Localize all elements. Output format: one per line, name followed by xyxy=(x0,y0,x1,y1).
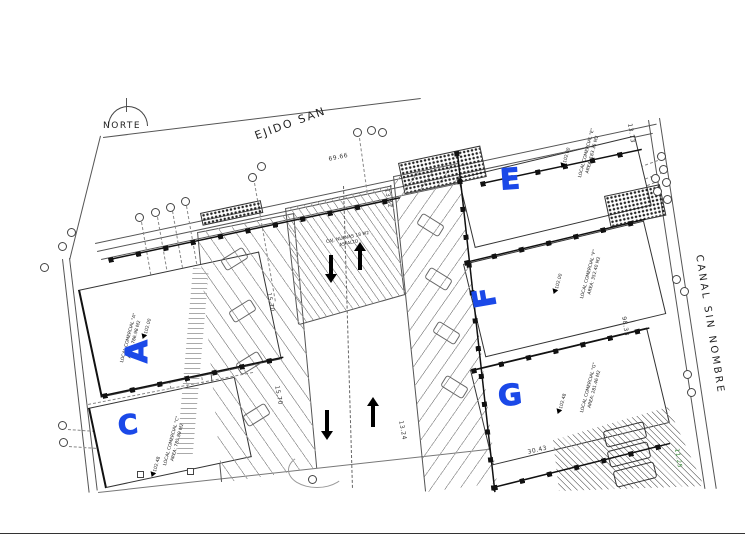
grid-tag xyxy=(187,468,194,475)
traffic-arrow-up xyxy=(371,405,375,427)
site-plan-sheet: NORTE EJIDO SAN CANAL SIN NOMBRE 69.66 9… xyxy=(0,0,745,538)
grid-bubble xyxy=(353,128,362,137)
grid-bubble xyxy=(651,174,660,183)
marker-letter-g: G xyxy=(496,377,523,413)
grid-bubble xyxy=(378,128,387,137)
marker-letter-e: E xyxy=(499,161,521,196)
sheet-border-bottom xyxy=(0,533,745,534)
grid-bubble xyxy=(67,228,76,237)
grid-bubble xyxy=(40,263,49,272)
grid-bubble xyxy=(663,195,672,204)
traffic-arrow-up xyxy=(358,250,362,270)
street-name-top: EJIDO SAN xyxy=(253,104,328,142)
grid-bubble xyxy=(367,126,376,135)
marker-letter-c: C xyxy=(116,409,139,442)
grid-bubble xyxy=(680,287,689,296)
grid-bubble xyxy=(662,178,671,187)
marker-letter-a: A xyxy=(120,340,155,363)
grid-bubble xyxy=(135,213,144,222)
grid-bubble xyxy=(659,165,668,174)
grid-leader-line xyxy=(359,138,368,193)
traffic-arrow-down xyxy=(325,410,329,432)
grid-bubble xyxy=(59,438,68,447)
dimension-label: 13.24 xyxy=(397,420,408,441)
grid-bubble xyxy=(672,275,681,284)
grid-bubble xyxy=(248,173,257,182)
grid-bubble xyxy=(687,388,696,397)
grid-bubble xyxy=(653,187,662,196)
grid-bubble xyxy=(58,421,67,430)
grid-bubble xyxy=(166,203,175,212)
grid-bubble xyxy=(683,370,692,379)
traffic-arrow-down xyxy=(329,255,333,275)
north-label: NORTE xyxy=(103,121,141,131)
grid-tag xyxy=(137,471,144,478)
grid-bubble xyxy=(58,242,67,251)
grid-bubble xyxy=(308,475,317,484)
grid-bubble xyxy=(257,162,266,171)
dimension-label: 69.66 xyxy=(328,152,349,163)
ejido-west-edge-line xyxy=(69,136,101,259)
level-mark-icon xyxy=(148,471,156,481)
grid-bubble xyxy=(151,208,160,217)
grid-bubble xyxy=(657,152,666,161)
grid-bubble xyxy=(181,197,190,206)
